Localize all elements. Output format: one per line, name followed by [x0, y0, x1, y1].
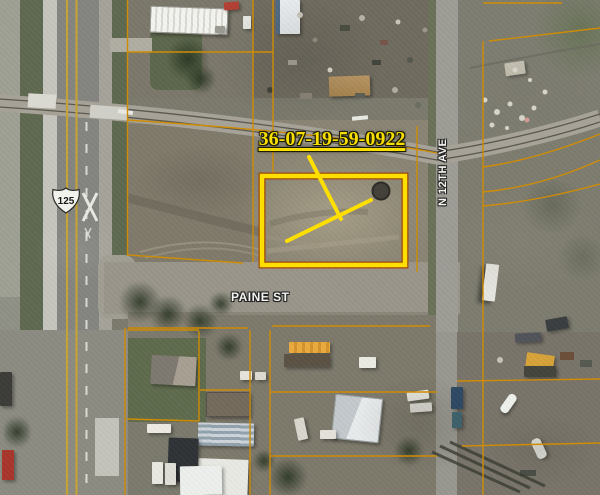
street-label-paine-st: PAINE ST	[231, 290, 289, 304]
road-markings	[67, 0, 97, 495]
map-overlay: 125	[0, 0, 600, 495]
parcel-boundary-lines	[125, 0, 600, 495]
parcel-leader-line	[309, 157, 341, 219]
debris-scatter	[267, 12, 592, 492]
route-125-shield-icon: 125	[53, 188, 80, 213]
crossing-gate	[352, 115, 368, 120]
parcel-id-label: 36-07-19-59-0922	[246, 128, 418, 151]
aerial-parcel-map: 125 36-07-19-59-0922 PAINE ST N 12TH AVE	[0, 0, 600, 495]
route-shield-number: 125	[58, 196, 75, 207]
railroad-crossing-x-marking	[83, 193, 97, 221]
crossing-panel	[28, 93, 57, 108]
parcel-dimension-line	[287, 200, 371, 241]
log-pile	[432, 442, 545, 492]
street-label-n-12th-ave: N 12TH AVE	[437, 110, 449, 206]
tank-structure	[373, 183, 390, 200]
